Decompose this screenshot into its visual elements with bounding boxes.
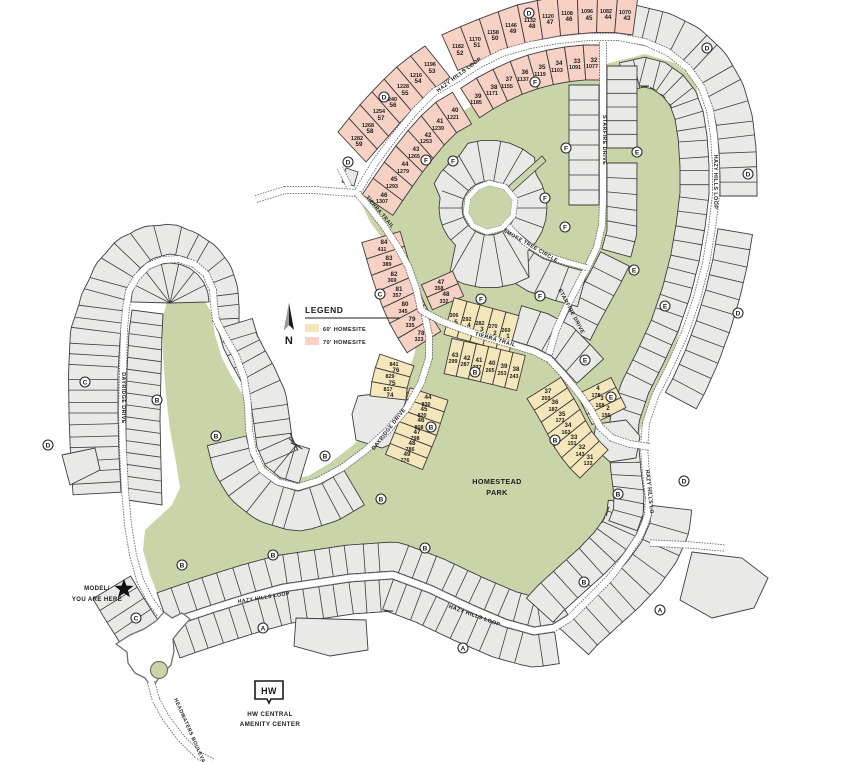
svg-text:PARK: PARK [486,488,508,497]
svg-text:36: 36 [552,399,559,406]
svg-text:287: 287 [461,362,470,368]
svg-text:35: 35 [559,411,566,418]
svg-text:A: A [658,607,663,614]
svg-text:40: 40 [489,360,496,367]
svg-text:E: E [663,303,668,310]
svg-text:143: 143 [576,452,585,458]
svg-text:DAYRIDGE DRIVE: DAYRIDGE DRIVE [120,372,126,424]
svg-text:STARFIRE DRIVE: STARFIRE DRIVE [601,115,607,165]
svg-text:MODEL/: MODEL/ [84,586,110,592]
svg-text:51: 51 [474,42,481,49]
svg-text:50: 50 [492,35,499,42]
svg-text:B: B [271,552,276,559]
svg-text:31: 31 [587,454,594,461]
svg-text:49: 49 [404,451,411,458]
svg-text:335: 335 [406,323,415,329]
svg-text:B: B [214,433,219,440]
svg-text:133: 133 [584,461,593,467]
svg-text:D: D [705,45,710,52]
svg-text:33: 33 [574,58,581,65]
svg-text:48: 48 [443,291,450,298]
svg-text:80: 80 [402,301,409,308]
svg-text:D: D [527,10,532,17]
svg-text:79: 79 [409,316,416,323]
svg-text:34: 34 [565,422,572,429]
svg-text:54: 54 [415,78,422,85]
svg-text:253: 253 [498,371,507,377]
svg-text:48: 48 [529,23,536,30]
svg-text:B: B [582,579,587,586]
svg-text:47: 47 [414,429,421,436]
svg-text:D: D [746,171,751,178]
svg-text:HOMESTEAD: HOMESTEAD [472,477,522,486]
svg-text:B: B [323,453,328,460]
svg-text:1091: 1091 [569,65,581,71]
svg-text:E: E [635,149,640,156]
svg-text:36: 36 [522,69,529,76]
svg-text:B: B [616,491,621,498]
svg-text:43: 43 [452,352,459,359]
svg-text:43: 43 [624,15,631,22]
svg-text:YOU ARE HERE: YOU ARE HERE [72,597,122,603]
svg-text:B: B [379,496,384,503]
svg-text:357: 357 [393,293,402,299]
svg-text:44: 44 [425,394,432,401]
svg-text:411: 411 [378,247,387,253]
svg-text:C: C [378,291,383,298]
svg-text:E: E [632,267,637,274]
svg-text:203: 203 [542,396,551,402]
svg-text:1279: 1279 [397,169,409,175]
svg-text:F: F [538,293,542,300]
svg-text:52: 52 [457,50,464,57]
svg-text:345: 345 [399,309,408,315]
svg-text:1103: 1103 [551,68,563,74]
svg-text:37: 37 [506,76,513,83]
svg-text:32: 32 [591,57,598,64]
svg-text:F: F [533,79,537,86]
svg-text:1221: 1221 [447,115,459,121]
svg-text:168: 168 [596,403,605,409]
svg-text:4: 4 [596,385,600,392]
svg-text:265: 265 [486,368,495,374]
svg-text:39: 39 [501,363,508,370]
svg-text:F: F [563,224,567,231]
svg-text:35: 35 [539,64,546,71]
svg-text:76: 76 [393,367,400,374]
svg-text:323: 323 [415,337,424,343]
svg-text:1155: 1155 [501,84,513,90]
svg-text:33: 33 [571,434,578,441]
svg-text:46: 46 [566,16,573,23]
svg-text:70' HOMESITE: 70' HOMESITE [323,340,366,346]
svg-text:A: A [261,625,266,632]
svg-text:45: 45 [391,176,398,183]
svg-text:3: 3 [600,395,604,402]
svg-text:E: E [583,357,588,364]
svg-text:49: 49 [510,28,517,35]
svg-text:B: B [155,397,160,404]
svg-text:75: 75 [389,380,396,387]
svg-text:F: F [424,157,428,164]
svg-text:D: D [346,159,351,166]
svg-text:1171: 1171 [486,91,498,97]
svg-text:F: F [564,145,568,152]
svg-text:83: 83 [386,255,393,262]
svg-text:42: 42 [425,132,432,139]
svg-text:151: 151 [568,441,577,447]
svg-text:38: 38 [513,366,520,373]
svg-text:40: 40 [452,107,459,114]
svg-text:173: 173 [556,418,565,424]
svg-text:44: 44 [605,14,612,21]
svg-text:F: F [451,158,455,165]
svg-text:84: 84 [381,239,388,246]
svg-text:59: 59 [356,141,363,148]
svg-text:34: 34 [556,60,563,67]
svg-text:F: F [479,296,483,303]
svg-text:1137: 1137 [517,77,529,83]
svg-text:D: D [382,94,387,101]
svg-text:45: 45 [421,406,428,413]
svg-text:57: 57 [378,115,385,122]
svg-text:1185: 1185 [470,100,482,106]
svg-text:32: 32 [579,444,586,451]
svg-text:178: 178 [592,393,601,399]
svg-text:1265: 1265 [408,154,420,160]
svg-text:163: 163 [562,430,571,436]
svg-text:A: A [461,645,466,652]
svg-text:299: 299 [449,359,458,365]
svg-text:B: B [473,369,478,376]
svg-text:37: 37 [545,388,552,395]
svg-text:42: 42 [464,355,471,362]
svg-text:HW CENTRAL: HW CENTRAL [247,711,293,718]
svg-text:46: 46 [381,192,388,199]
svg-text:E: E [609,394,614,401]
svg-text:B: B [553,437,558,444]
svg-text:81: 81 [396,286,403,293]
svg-text:1: 1 [506,333,510,340]
svg-text:N: N [285,335,293,347]
svg-text:F: F [543,195,547,202]
svg-text:78: 78 [418,330,425,337]
svg-text:776: 776 [401,458,410,464]
svg-text:44: 44 [402,161,409,168]
svg-text:D: D [46,442,51,449]
svg-text:B: B [423,545,428,552]
svg-text:41: 41 [437,118,444,125]
svg-text:74: 74 [387,392,394,399]
svg-text:AMENITY CENTER: AMENITY CENTER [240,721,301,728]
svg-text:B: B [180,562,185,569]
svg-text:56: 56 [390,102,397,109]
svg-text:C: C [134,615,139,622]
svg-text:58: 58 [367,128,374,135]
svg-text:389: 389 [383,262,392,268]
svg-text:60' HOMESITE: 60' HOMESITE [323,327,366,333]
svg-text:1253: 1253 [420,139,432,145]
svg-text:43: 43 [413,146,420,153]
svg-text:332: 332 [440,299,449,305]
svg-text:369: 369 [388,278,397,284]
svg-text:47: 47 [547,19,554,26]
svg-text:53: 53 [429,68,436,75]
svg-text:47: 47 [438,279,445,286]
svg-text:LEGEND: LEGEND [305,305,343,315]
svg-text:46: 46 [418,417,425,424]
svg-text:B: B [429,424,434,431]
svg-text:1293: 1293 [386,184,398,190]
svg-text:HW: HW [261,686,277,696]
svg-text:HAZY HILLS LOOP: HAZY HILLS LOOP [712,155,718,209]
svg-text:243: 243 [510,374,519,380]
svg-text:38: 38 [491,84,498,91]
svg-text:55: 55 [402,90,409,97]
svg-text:D: D [682,478,687,485]
svg-text:C: C [83,379,88,386]
svg-text:41: 41 [476,357,483,364]
svg-text:45: 45 [586,15,593,22]
svg-text:1239: 1239 [432,126,444,132]
svg-text:2: 2 [606,405,610,412]
svg-text:1077: 1077 [586,64,598,70]
svg-text:39: 39 [475,93,482,100]
svg-text:82: 82 [391,271,398,278]
svg-text:48: 48 [409,440,416,447]
svg-text:187: 187 [549,407,558,413]
svg-text:D: D [736,310,741,317]
svg-text:156: 156 [602,413,611,419]
